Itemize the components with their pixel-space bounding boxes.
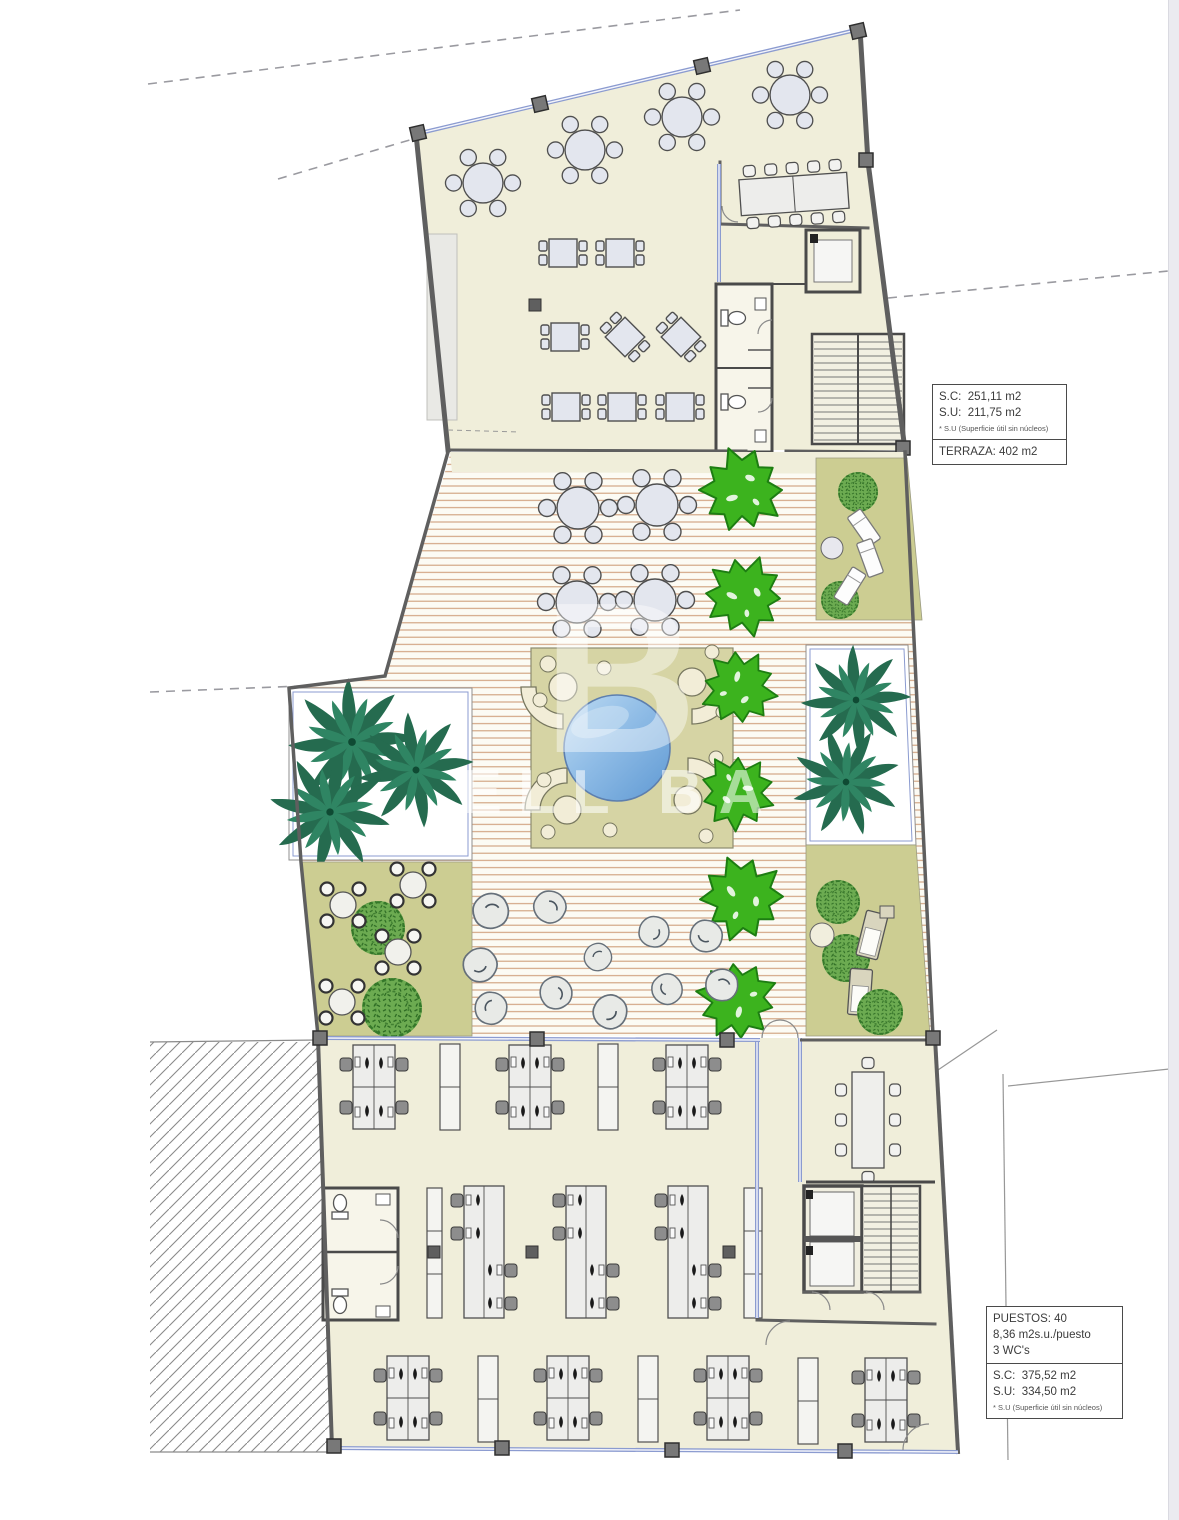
- side-table: [821, 537, 843, 559]
- ratio-value: 8,36 m2s.u./puesto: [993, 1327, 1116, 1343]
- lower-box-areas: S.C: 375,52 m2 S.U: 334,50 m2 * S.U (Sup…: [987, 1363, 1122, 1418]
- terraza-value: TERRAZA: 402 m2: [939, 444, 1060, 460]
- stairs-bottom: [862, 1186, 920, 1292]
- elevator-top: [806, 230, 860, 292]
- puestos-value: PUESTOS: 40: [993, 1311, 1116, 1327]
- area-summary-box-lower: PUESTOS: 40 8,36 m2s.u./puesto 3 WC's S.…: [986, 1306, 1123, 1419]
- lower-box-workstations: PUESTOS: 40 8,36 m2s.u./puesto 3 WC's: [987, 1307, 1122, 1363]
- sc-value: S.C: 375,52 m2: [993, 1368, 1116, 1384]
- wcs-value: 3 WC's: [993, 1343, 1116, 1359]
- top-section: [410, 23, 910, 470]
- terrace: [247, 448, 933, 1054]
- floor-plan-canvas: [0, 0, 1179, 1520]
- sc-value: S.C: 251,11 m2: [939, 389, 1060, 405]
- planted-area-right: [806, 845, 930, 1036]
- sink: [376, 1194, 390, 1205]
- adjacent-plot-hatch: [150, 1040, 332, 1452]
- office-section: [313, 1020, 958, 1458]
- sink: [376, 1306, 390, 1317]
- su-value: S.U: 211,75 m2: [939, 405, 1060, 421]
- su-note: * S.U (Superficie útil sin núcleos): [939, 424, 1060, 435]
- sink: [755, 430, 766, 442]
- su-note: * S.U (Superficie útil sin núcleos): [993, 1403, 1116, 1414]
- area-summary-box-upper: S.C: 251,11 m2 S.U: 211,75 m2 * S.U (Sup…: [932, 384, 1067, 465]
- upper-box-areas: S.C: 251,11 m2 S.U: 211,75 m2 * S.U (Sup…: [933, 385, 1066, 439]
- planted-area-left: [301, 862, 472, 1038]
- pool-platform: [521, 645, 734, 848]
- upper-box-terrace: TERRAZA: 402 m2: [933, 439, 1066, 464]
- wc-core-top: [716, 284, 772, 452]
- su-value: S.U: 334,50 m2: [993, 1384, 1116, 1400]
- elevator-core-bottom: [804, 1186, 862, 1292]
- wc-block-bottom: [323, 1188, 398, 1320]
- sink: [755, 298, 766, 310]
- scrollbar[interactable]: [1168, 0, 1179, 1520]
- side-table: [810, 923, 834, 947]
- conference-table: [738, 159, 850, 229]
- footstool: [880, 906, 894, 918]
